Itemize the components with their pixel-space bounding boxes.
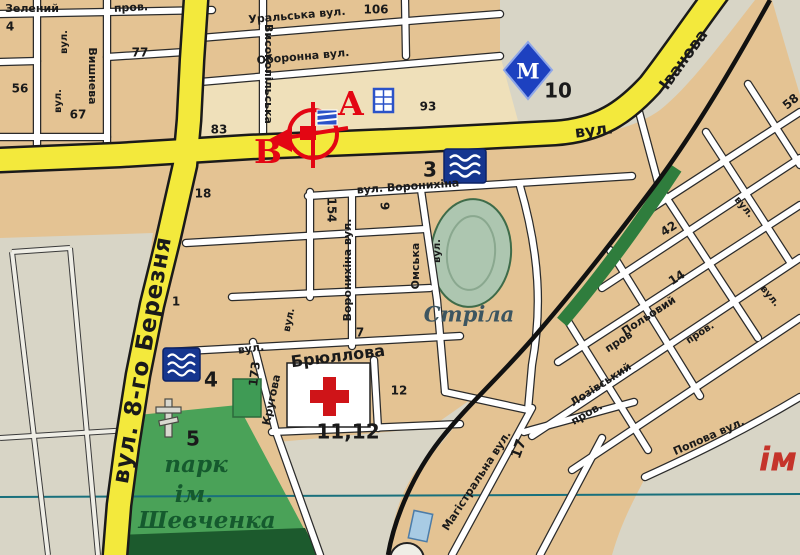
street-label: Вишнева: [86, 47, 99, 104]
house-number: 83: [211, 123, 228, 137]
park-label: парк: [164, 451, 228, 478]
house-number: 18: [195, 187, 212, 201]
route-point-a: А: [338, 84, 365, 123]
stadium-label: Стріла: [424, 302, 515, 327]
flag-icon: [317, 110, 337, 125]
route-point-b: В: [254, 132, 282, 171]
street-label: пров.: [114, 0, 149, 15]
house-number: 1: [172, 295, 180, 309]
house-number: 154: [325, 197, 339, 222]
street-label: вул.: [53, 89, 64, 113]
poi-number: 11,12: [316, 420, 379, 444]
house-number: 12: [391, 384, 408, 398]
swimming-pool-icon: [163, 348, 200, 381]
poi-number: 4: [204, 368, 218, 392]
house-number: 4: [6, 20, 14, 34]
house-number: 93: [420, 100, 437, 114]
building-icon: [374, 89, 393, 112]
house-number: 67: [70, 108, 87, 122]
poi-number: 10: [544, 79, 572, 103]
factory-label: ім: [759, 440, 797, 479]
park-label: Шевченка: [137, 507, 275, 534]
house-number: 9: [378, 202, 392, 210]
street-label: вул.: [432, 239, 443, 263]
street-label: вул.: [59, 30, 70, 54]
poi-number: 5: [186, 427, 200, 451]
city-map[interactable]: Зеленийпров.4вул.56вул.67Вишнева77Високо…: [0, 0, 800, 555]
house-number: 7: [356, 326, 364, 340]
house-number: 56: [12, 82, 29, 96]
park-label: ім.: [175, 481, 214, 508]
metro-m-glyph: М: [516, 59, 539, 84]
house-number: 77: [132, 46, 149, 60]
house-number: 106: [363, 3, 388, 17]
street-label: Зелений: [5, 2, 59, 15]
street-label: Високопільська: [262, 24, 275, 124]
street-label: Воронихіна вул.: [341, 219, 354, 322]
street-label-omska: Омська: [409, 243, 422, 290]
map-canvas: Зеленийпров.4вул.56вул.67Вишнева77Високо…: [0, 0, 800, 555]
hospital-cross-icon: [287, 363, 370, 427]
